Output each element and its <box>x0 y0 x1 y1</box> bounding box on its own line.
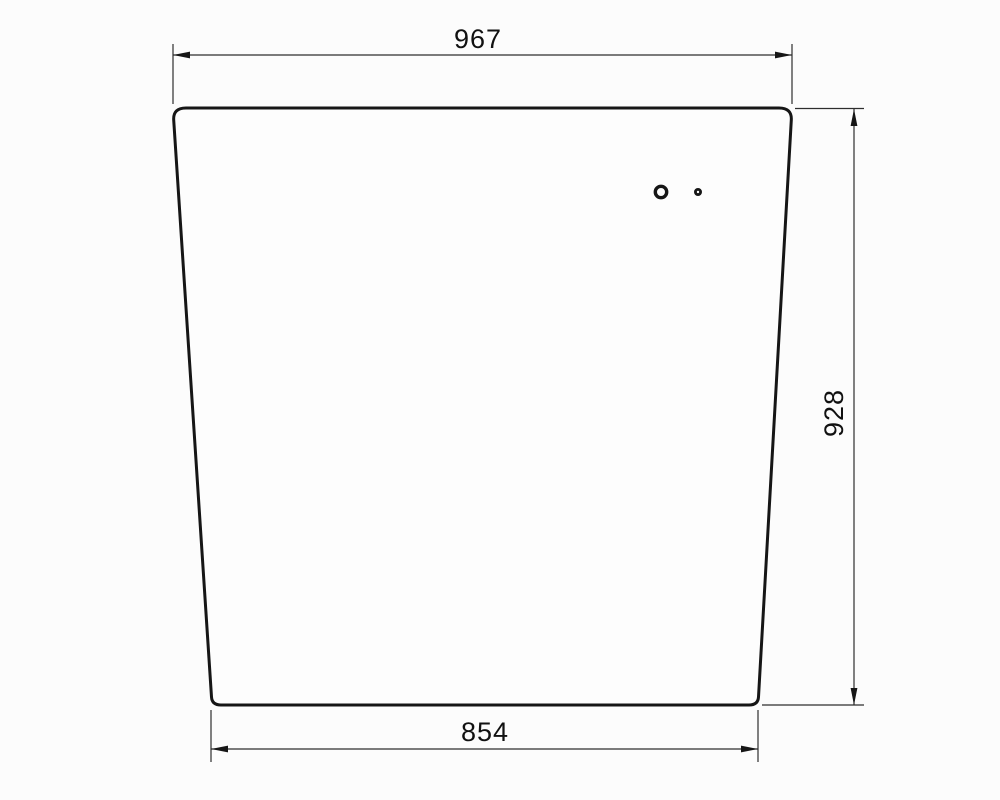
dimension-label-height: 928 <box>819 389 849 437</box>
panel-outline <box>174 108 792 705</box>
dimension-label-bottom-width: 854 <box>461 717 509 747</box>
arrowhead-up-icon <box>851 109 858 126</box>
dimension-bottom-width: 854 <box>211 710 758 762</box>
arrowhead-down-icon <box>851 688 858 705</box>
arrowhead-right-icon <box>775 52 792 59</box>
arrowhead-left-icon <box>211 746 228 753</box>
technical-drawing: 967 928 854 <box>0 0 1000 800</box>
drawing-canvas: 967 928 854 <box>0 0 1000 800</box>
dimension-top-width: 967 <box>173 24 792 104</box>
dimension-label-top-width: 967 <box>454 24 502 54</box>
arrowhead-right-icon <box>741 746 758 753</box>
arrowhead-left-icon <box>173 52 190 59</box>
